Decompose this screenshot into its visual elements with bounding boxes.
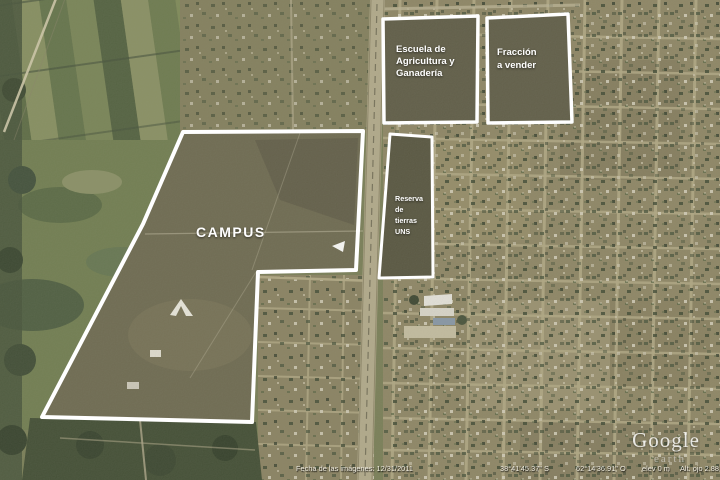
reserva-label-line3: tierras: [395, 216, 417, 225]
campus-label: CAMPUS: [196, 224, 266, 240]
escuela-label-line1: Escuela de: [396, 44, 446, 55]
fraccion-label-line1: Fracción: [497, 47, 537, 58]
reserva-label-line2: de: [395, 205, 403, 214]
aerial-imagery[interactable]: CAMPUS Escuela de Agricultura y Ganaderí…: [0, 0, 720, 480]
escuela-label-line2: Agricultura y: [396, 56, 455, 67]
photo-grain-overlay: [0, 0, 720, 480]
status-bar: Fecha de las imágenes: 12/31/2011 38°41'…: [296, 464, 720, 473]
eye-altitude-text: Alt. ojo 2.88 km: [680, 464, 720, 473]
map-viewport[interactable]: CAMPUS Escuela de Agricultura y Ganaderí…: [0, 0, 720, 480]
escuela-label-line3: Ganadería: [396, 68, 443, 79]
longitude-text: 62°14'36.91" O: [576, 464, 626, 473]
elevation-text: elev 0 m: [642, 464, 670, 473]
fraccion-label-line2: a vender: [497, 60, 536, 71]
imagery-date-text: Fecha de las imágenes: 12/31/2011: [296, 464, 413, 473]
google-logo-text: Google: [632, 428, 700, 452]
reserva-label-line4: UNS: [395, 227, 410, 236]
latitude-text: 38°41'45.37" S: [500, 464, 549, 473]
reserva-label-line1: Reserva: [395, 194, 424, 203]
